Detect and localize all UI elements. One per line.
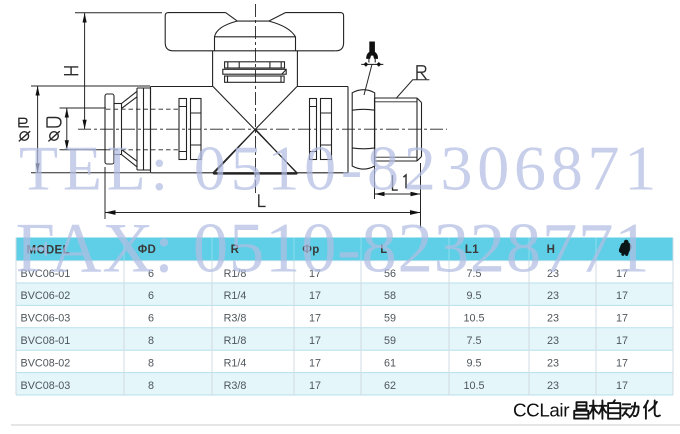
svg-text:17: 17 xyxy=(309,335,321,347)
svg-text:8: 8 xyxy=(148,357,154,369)
svg-text:17: 17 xyxy=(616,357,628,369)
svg-text:R3/8: R3/8 xyxy=(224,313,247,325)
svg-text:17: 17 xyxy=(616,313,628,325)
svg-text:R1/4: R1/4 xyxy=(224,357,247,369)
svg-text:10.5: 10.5 xyxy=(463,380,484,392)
svg-text:17: 17 xyxy=(616,290,628,302)
svg-text:17: 17 xyxy=(309,380,321,392)
svg-text:6: 6 xyxy=(148,313,154,325)
svg-text:R1/8: R1/8 xyxy=(224,335,247,347)
svg-text:8: 8 xyxy=(148,380,154,392)
svg-text:8: 8 xyxy=(148,335,154,347)
svg-text:FAX: 0510-82328771: FAX: 0510-82328771 xyxy=(16,210,651,288)
svg-text:58: 58 xyxy=(384,290,396,302)
svg-text:TEL: 0510-82306871: TEL: 0510-82306871 xyxy=(19,133,661,204)
svg-text:17: 17 xyxy=(309,313,321,325)
svg-text:9.5: 9.5 xyxy=(466,290,481,302)
svg-text:23: 23 xyxy=(547,335,559,347)
svg-text:BVC06-03: BVC06-03 xyxy=(21,313,71,325)
svg-text:7.5: 7.5 xyxy=(466,335,481,347)
svg-text:23: 23 xyxy=(547,313,559,325)
svg-text:62: 62 xyxy=(384,380,396,392)
svg-text:17: 17 xyxy=(616,335,628,347)
svg-text:17: 17 xyxy=(309,290,321,302)
svg-text:23: 23 xyxy=(547,357,559,369)
svg-text:BVC06-02: BVC06-02 xyxy=(21,290,71,302)
svg-text:23: 23 xyxy=(547,380,559,392)
svg-text:59: 59 xyxy=(384,335,396,347)
svg-text:BVC08-02: BVC08-02 xyxy=(21,357,71,369)
svg-text:CCLair: CCLair xyxy=(513,400,569,421)
svg-text:17: 17 xyxy=(309,357,321,369)
svg-text:9.5: 9.5 xyxy=(466,357,481,369)
svg-text:17: 17 xyxy=(616,380,628,392)
svg-text:R3/8: R3/8 xyxy=(224,380,247,392)
svg-text:59: 59 xyxy=(384,313,396,325)
svg-text:61: 61 xyxy=(384,357,396,369)
svg-text:BVC08-03: BVC08-03 xyxy=(21,380,71,392)
svg-text:R1/4: R1/4 xyxy=(224,290,247,302)
svg-text:BVC08-01: BVC08-01 xyxy=(21,335,71,347)
svg-text:6: 6 xyxy=(148,290,154,302)
svg-text:23: 23 xyxy=(547,290,559,302)
svg-text:10.5: 10.5 xyxy=(463,313,484,325)
